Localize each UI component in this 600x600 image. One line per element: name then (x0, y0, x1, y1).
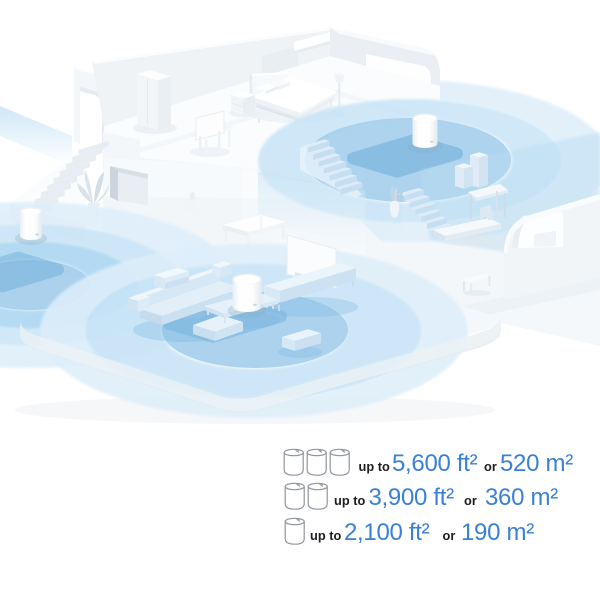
svg-text:up to: up to (310, 528, 341, 543)
svg-text:5,600 ft²: 5,600 ft² (392, 450, 478, 477)
svg-text:or: or (443, 528, 456, 543)
svg-text:190 m²: 190 m² (461, 519, 534, 546)
svg-text:520 m²: 520 m² (500, 450, 573, 477)
svg-text:2,100 ft²: 2,100 ft² (344, 519, 430, 546)
svg-text:up to: up to (359, 459, 390, 474)
svg-text:or: or (464, 493, 477, 508)
svg-text:360 m²: 360 m² (485, 484, 558, 511)
svg-text:up to: up to (334, 493, 365, 508)
svg-text:3,900 ft²: 3,900 ft² (369, 484, 455, 511)
svg-text:or: or (484, 459, 497, 474)
